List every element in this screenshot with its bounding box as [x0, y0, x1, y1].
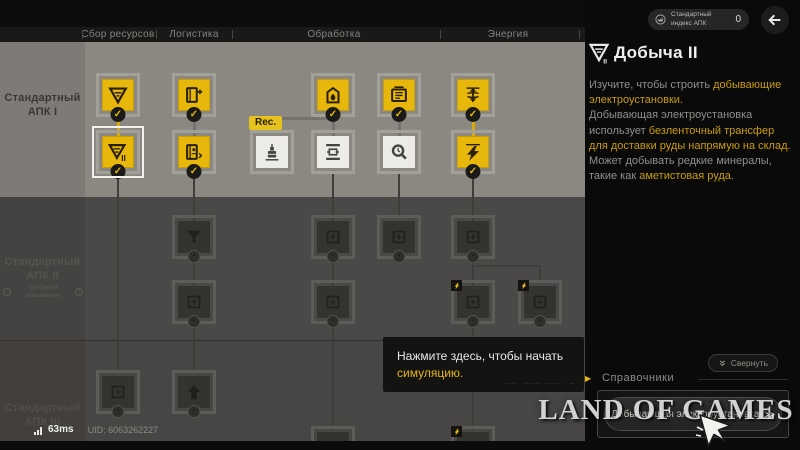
- rec-machine-icon: [256, 136, 288, 168]
- reference-button[interactable]: Добывающая электроустановка ≫: [597, 390, 789, 438]
- tech-node-module[interactable]: ▪: [96, 370, 140, 414]
- lock-icon: ▪: [534, 315, 547, 328]
- tech-node-furnace[interactable]: ✓: [311, 73, 355, 117]
- tier-2-label-line1: Стандартный: [4, 256, 80, 268]
- tier-1-sidebar: [0, 42, 85, 197]
- tab-separator: [440, 30, 441, 39]
- tech-title: Добыча II: [614, 43, 698, 63]
- tab-0[interactable]: Сбор ресурсов: [81, 29, 154, 40]
- description-paragraph: Изучите, чтобы строить добывающие электр…: [589, 78, 791, 108]
- description-paragraph: Добывающая электроустановка использует б…: [589, 108, 791, 154]
- power-badge-icon: [451, 280, 462, 291]
- check-icon: ✓: [326, 107, 341, 122]
- tab-separator: [579, 30, 580, 39]
- back-button[interactable]: [761, 6, 789, 34]
- index-label: Стандартный индекс АПК: [671, 11, 731, 28]
- check-icon: ✓: [466, 107, 481, 122]
- tab-2[interactable]: Обработка: [307, 29, 360, 40]
- check-icon: ✓: [466, 164, 481, 179]
- tab-separator: [156, 30, 157, 39]
- tech-node-module[interactable]: ▪: [451, 215, 495, 259]
- tier-3-label-line1: Стандартный: [4, 402, 80, 414]
- panel-title-row: II Добыча II: [588, 40, 698, 65]
- lock-icon: ▪: [188, 250, 201, 263]
- tier-2-requirement: Требуется повышение ?: [3, 284, 83, 300]
- tier-2-label: Стандартный АПК II: [0, 256, 85, 284]
- tech-node-module[interactable]: ▪: [377, 215, 421, 259]
- signal-bars-icon: [34, 427, 42, 435]
- reference-button-label: Добывающая электроустановка: [611, 409, 759, 420]
- tier-2-section: [0, 197, 585, 340]
- tech-node-power-pylon[interactable]: ✓: [451, 73, 495, 117]
- tech-node-drill-1[interactable]: ✓: [96, 73, 140, 117]
- ping-value: 63ms: [48, 424, 74, 435]
- module-icon: [383, 221, 415, 253]
- tree-connector: [398, 174, 400, 217]
- references-header: Справочники: [602, 372, 674, 384]
- factory-index-icon: [654, 13, 667, 26]
- lock-icon: ▪: [393, 250, 406, 263]
- module-icon: [178, 286, 210, 318]
- references-divider: [698, 379, 788, 380]
- double-chevron-down-icon: [718, 359, 727, 368]
- uid-value: UID: 6063262227: [88, 425, 159, 435]
- collapse-button[interactable]: Свернуть: [708, 354, 778, 372]
- help-icon: ?: [75, 288, 83, 296]
- tier-1-label-line2: АПК I: [28, 106, 58, 118]
- tech-node-module[interactable]: ▪: [311, 215, 355, 259]
- lock-icon: ▪: [188, 405, 201, 418]
- tab-3[interactable]: Энергия: [488, 29, 529, 40]
- lock-icon: ▪: [467, 315, 480, 328]
- module-icon: [457, 221, 489, 253]
- tree-connector: [193, 174, 195, 372]
- tech-node-lightning[interactable]: ✓: [451, 130, 495, 174]
- tech-node-press[interactable]: [311, 130, 355, 174]
- check-icon: ✓: [111, 107, 126, 122]
- lock-icon: ▪: [327, 315, 340, 328]
- tech-node-drill-2[interactable]: II✓: [96, 130, 140, 174]
- collapse-label: Свернуть: [731, 358, 768, 368]
- svg-text:II: II: [603, 59, 607, 66]
- gear-wrench-icon: [383, 136, 415, 168]
- simulation-tooltip: Нажмите здесь, чтобы начать симуляцию. —…: [383, 337, 584, 392]
- aic-index-widget[interactable]: Стандартный индекс АПК 0: [648, 9, 749, 30]
- tree-connector: [473, 265, 541, 267]
- check-icon: ✓: [187, 107, 202, 122]
- aic-tech-tree-screen: Стандартный АПК I Стандартный АПК II Тре…: [0, 0, 800, 450]
- index-label-line2: индекс АПК: [671, 20, 706, 27]
- index-label-line1: Стандартный: [671, 11, 712, 18]
- detail-panel: II Добыча II Изучите, чтобы строить добы…: [585, 0, 800, 450]
- reference-button-inner: Добывающая электроустановка ≫: [604, 397, 782, 431]
- rec-tag: Rec.: [249, 116, 282, 130]
- press-icon: [317, 136, 349, 168]
- tech-node-module[interactable]: ▪: [172, 280, 216, 324]
- module-icon: [102, 376, 134, 408]
- power-badge-icon: [518, 280, 529, 291]
- power-badge-icon: [451, 426, 462, 437]
- top-bar: [0, 0, 585, 28]
- tech-node-module[interactable]: ▪: [518, 280, 562, 324]
- tech-node-funnel[interactable]: ▪: [172, 215, 216, 259]
- tier-1-label: Стандартный АПК I: [0, 92, 85, 120]
- tech-node-arrow-up[interactable]: ▪: [172, 370, 216, 414]
- tech-node-gear-wrench[interactable]: [377, 130, 421, 174]
- module-icon: [317, 221, 349, 253]
- tech-node-logistics-book-2[interactable]: ✓: [172, 130, 216, 174]
- tier-1-label-line1: Стандартный: [4, 92, 80, 104]
- module-icon: [317, 286, 349, 318]
- tech-node-rec-machine[interactable]: Rec.: [250, 130, 294, 174]
- status-bar: 63ms UID: 6063262227: [34, 424, 158, 435]
- tech-node-module[interactable]: ▪: [451, 280, 495, 324]
- lock-icon: ▪: [112, 405, 125, 418]
- tech-node-smelter[interactable]: ✓: [377, 73, 421, 117]
- index-value: 0: [735, 14, 741, 25]
- lock-icon: ▪: [327, 250, 340, 263]
- tab-1[interactable]: Логистика: [169, 29, 218, 40]
- check-icon: ✓: [392, 107, 407, 122]
- drill-2-icon: II: [588, 40, 610, 65]
- lock-icon: ▪: [188, 315, 201, 328]
- tooltip-watermark: —— · ——— ——— · —: [505, 381, 576, 388]
- tech-node-logistics-book-plus[interactable]: ✓: [172, 73, 216, 117]
- check-icon: ✓: [187, 164, 202, 179]
- requirement-text: Требуется повышение: [14, 284, 72, 300]
- tab-separator: [82, 30, 83, 39]
- tooltip-text: Нажмите здесь, чтобы начать: [397, 349, 563, 363]
- bottom-bar: [0, 441, 800, 450]
- funnel-icon: [178, 221, 210, 253]
- tree-connector: [117, 174, 119, 372]
- lock-icon: ▪: [467, 250, 480, 263]
- references-marker-icon: ▶: [585, 374, 591, 383]
- tech-node-module[interactable]: ▪: [311, 280, 355, 324]
- arrow-up-icon: [178, 376, 210, 408]
- description-paragraph: Может добывать редкие минералы, такие ка…: [589, 154, 791, 184]
- tooltip-highlight: симуляцию.: [397, 366, 463, 380]
- back-arrow-icon: [767, 12, 783, 28]
- double-chevron-right-icon: ≫: [763, 408, 775, 421]
- category-tab-bar: Сбор ресурсовЛогистикаОбработкаЭнергия: [0, 27, 585, 42]
- tier-2-label-line2: АПК II: [26, 270, 59, 282]
- selection-bracket: [92, 126, 144, 178]
- tab-separator: [232, 30, 233, 39]
- tech-description: Изучите, чтобы строить добывающие электр…: [589, 78, 791, 184]
- requirement-icon: [3, 288, 11, 296]
